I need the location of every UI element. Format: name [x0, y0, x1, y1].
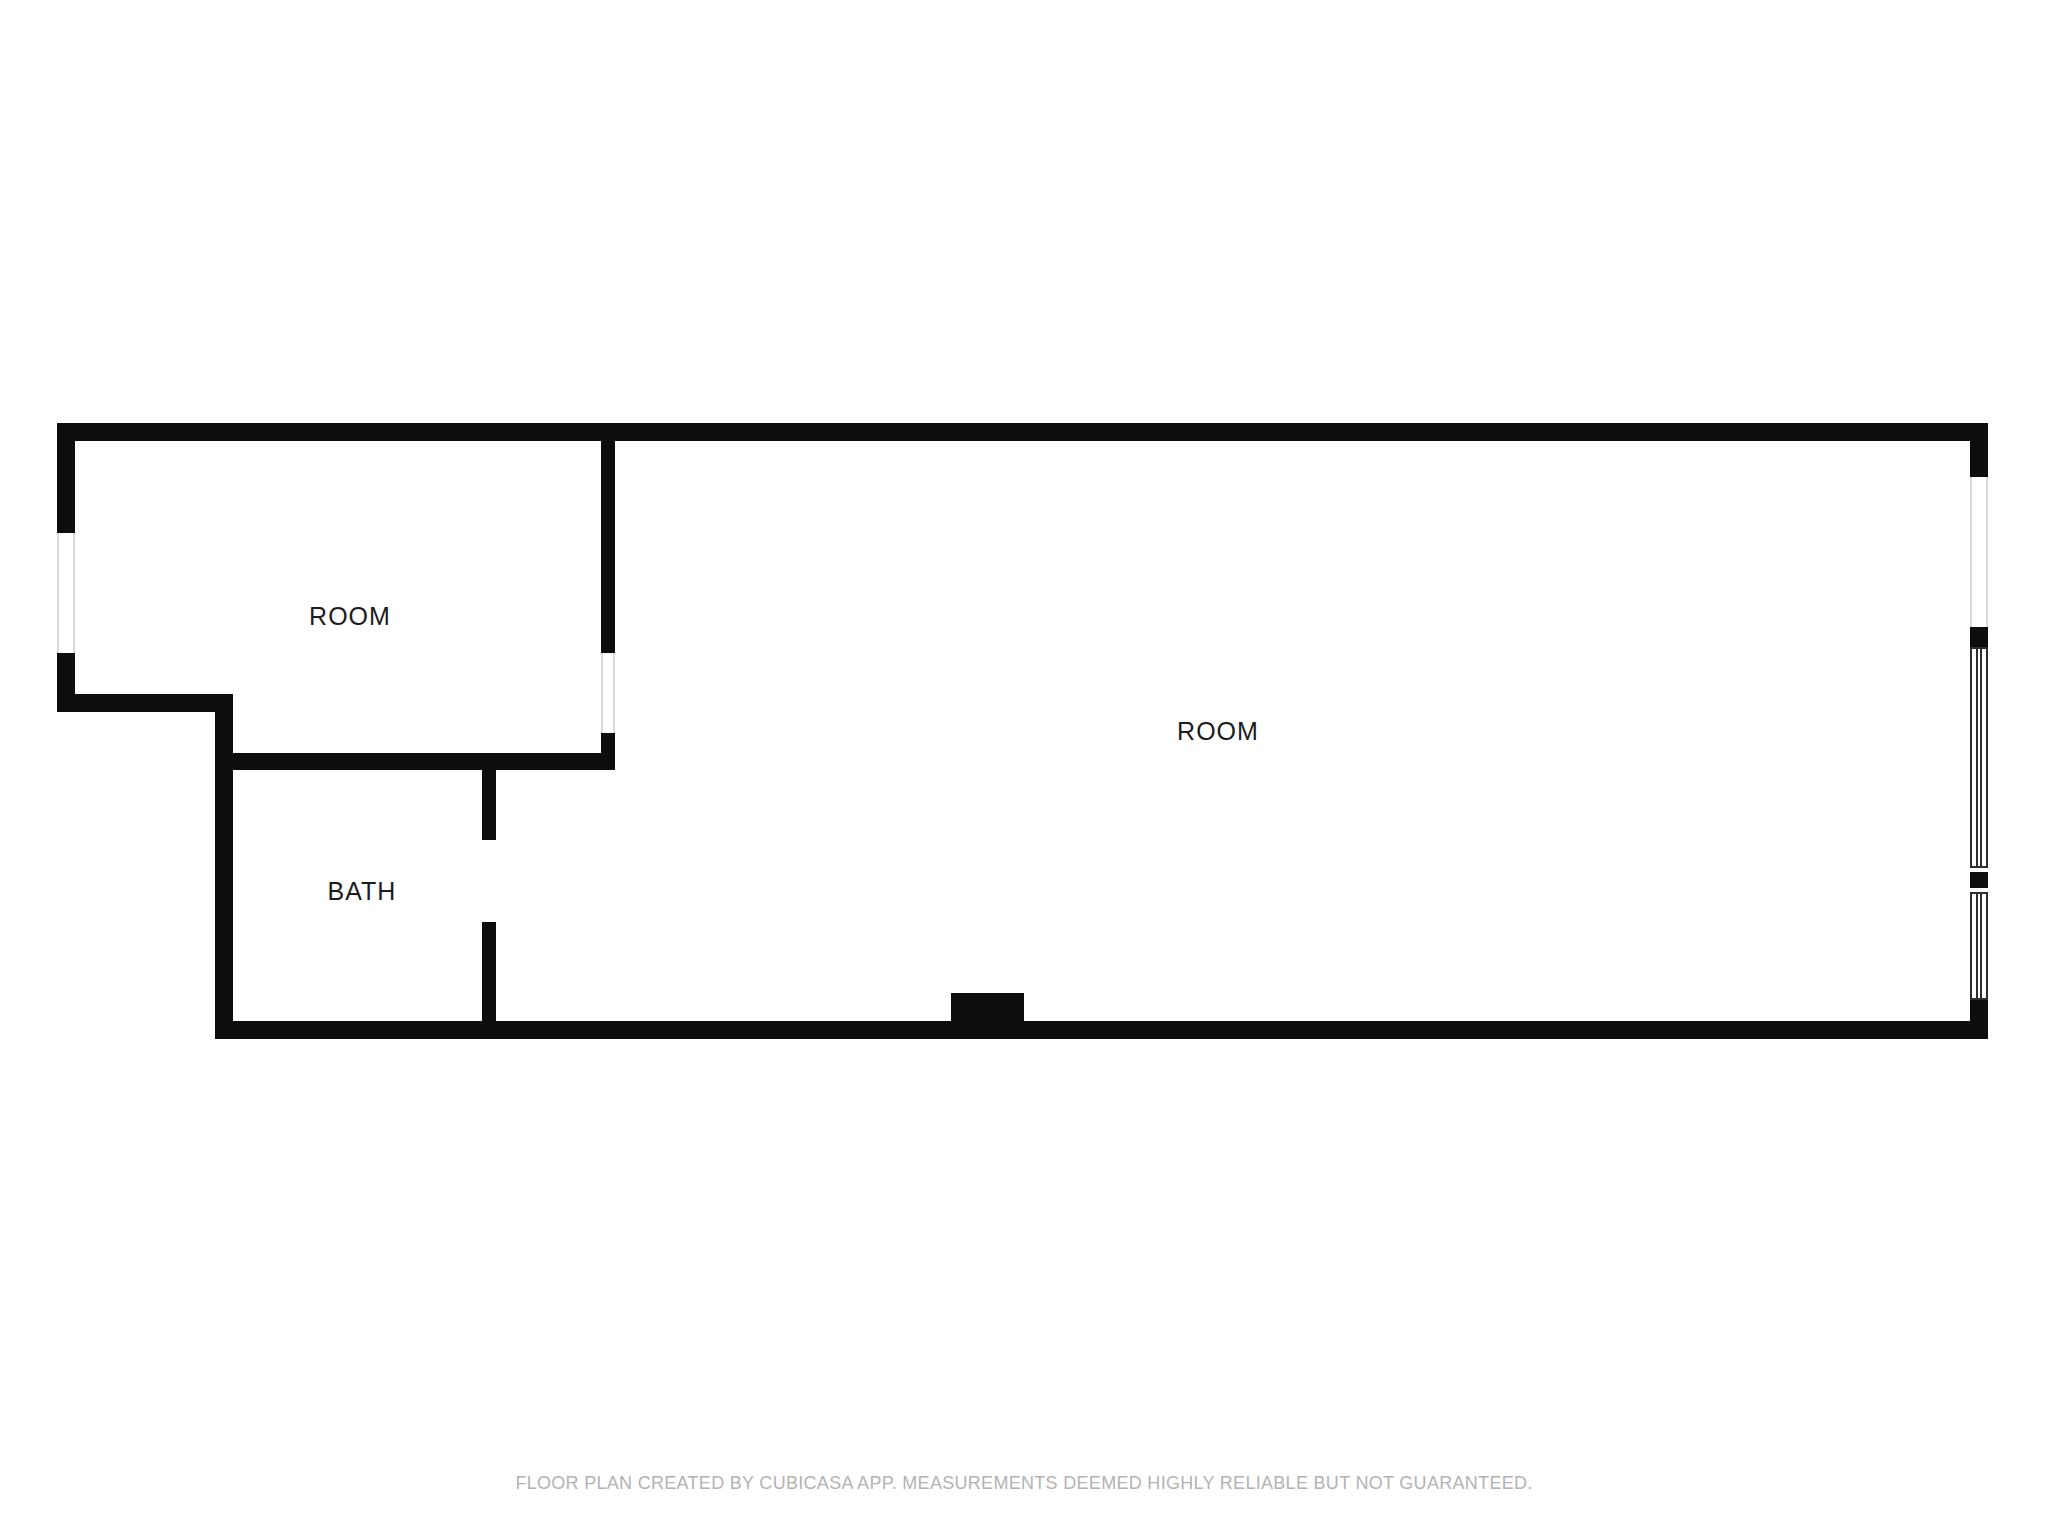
right-wall-mid-2	[1970, 872, 1988, 888]
room-bath-divider	[215, 753, 615, 770]
right-wall-window-2-mullion	[1976, 894, 1982, 998]
bath-right-wall-upper	[482, 770, 496, 840]
jog-wall	[57, 694, 233, 712]
right-wall-window-1-mullion	[1976, 649, 1982, 866]
right-wall-top	[1970, 423, 1988, 477]
bath-right-wall-lower	[482, 922, 496, 1021]
interior-wall-upper	[601, 441, 615, 653]
left-wall-window	[57, 533, 75, 653]
interior-wall-opening	[601, 653, 615, 733]
right-wall-window-2	[1970, 892, 1988, 1000]
right-wall-opening	[1970, 477, 1988, 627]
interior-wall-lower	[601, 733, 615, 770]
floor-plan-page: ROOM BATH ROOM FLOOR PLAN CREATED BY CUB…	[0, 0, 2048, 1536]
left-wall-upper	[57, 423, 75, 533]
bath-door-opening	[482, 840, 496, 922]
right-wall-window-1	[1970, 647, 1988, 868]
entry-threshold	[951, 993, 1024, 1021]
room-label-room-1: ROOM	[309, 602, 391, 631]
bottom-wall	[215, 1021, 1988, 1039]
room-label-bath: BATH	[328, 877, 397, 906]
floor-plan-drawing	[0, 0, 2048, 1536]
footer-disclaimer: FLOOR PLAN CREATED BY CUBICASA APP. MEAS…	[0, 1473, 2048, 1494]
right-wall-bottom	[1970, 1000, 1988, 1039]
room-label-room-2: ROOM	[1177, 717, 1259, 746]
right-wall-mid-1	[1970, 627, 1988, 647]
top-wall	[57, 423, 1988, 441]
